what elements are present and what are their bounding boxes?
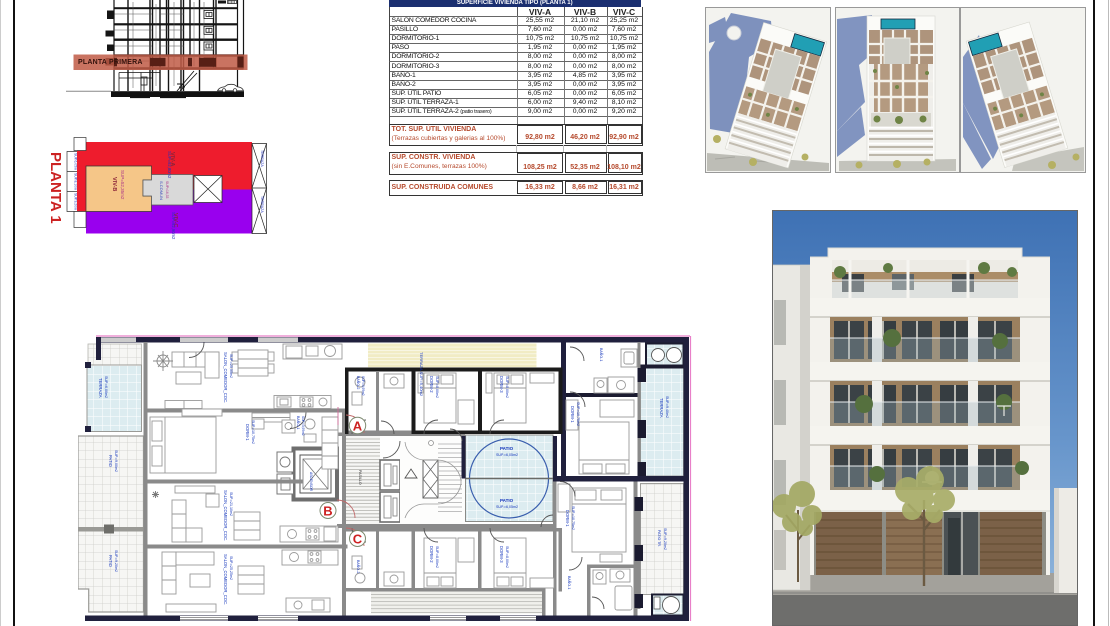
- svg-text:S.COMUN: S.COMUN: [159, 181, 164, 200]
- svg-text:SALON_COMEDOR_COC.: SALON_COMEDOR_COC.: [223, 554, 228, 605]
- svg-text:SUP.8,10m: SUP.8,10m: [74, 173, 78, 190]
- svg-text:SUP.=8,00m2: SUP.=8,00m2: [505, 376, 509, 398]
- svg-text:DORM-3: DORM-3: [499, 376, 504, 393]
- svg-text:PATIO: PATIO: [108, 455, 113, 468]
- svg-text:SUP.=3,95m2: SUP.=3,95m2: [301, 416, 305, 436]
- svg-text:TERRAZA: TERRAZA: [260, 196, 264, 213]
- svg-text:DORM-2: DORM-2: [429, 546, 434, 563]
- svg-text:SUP.=9,20m2: SUP.=9,20m2: [663, 528, 667, 550]
- svg-text:PLANTA PRIMERA: PLANTA PRIMERA: [78, 59, 143, 66]
- svg-text:SUP.=8,00m2: SUP.=8,00m2: [435, 546, 439, 568]
- svg-text:PATIO: PATIO: [108, 555, 113, 568]
- svg-text:SUP.=6,00m2: SUP.=6,00m2: [104, 376, 108, 398]
- svg-text:SUP.=25,25m2: SUP.=25,25m2: [229, 556, 233, 580]
- svg-text:PASILLO: PASILLO: [358, 470, 362, 485]
- svg-text:SUP=16,33: SUP=16,33: [165, 181, 169, 199]
- svg-text:SUP.=6,05m2: SUP.=6,05m2: [496, 453, 518, 457]
- svg-text:SUP.=9,40m2: SUP.=9,40m2: [665, 396, 669, 418]
- svg-text:SUP.=8,00m2: SUP.=8,00m2: [435, 376, 439, 398]
- svg-text:C: C: [353, 532, 363, 547]
- svg-text:SUP.=3,95m2: SUP.=3,95m2: [361, 376, 365, 396]
- svg-text:DORM-1: DORM-1: [570, 406, 575, 423]
- svg-text:BAÑO-1: BAÑO-1: [296, 416, 301, 429]
- svg-text:DORM-3: DORM-3: [499, 546, 504, 563]
- svg-text:DORM-2: DORM-2: [429, 376, 434, 393]
- svg-text:SUP=92,80m2: SUP=92,80m2: [167, 151, 172, 179]
- svg-text:SUP.=21,10m2: SUP.=21,10m2: [229, 492, 233, 516]
- svg-text:SUP.=9,00m2: SUP.=9,00m2: [114, 450, 118, 472]
- svg-text:PATIO: PATIO: [500, 446, 514, 451]
- svg-text:DORM-1: DORM-1: [565, 510, 570, 527]
- svg-text:TERRAZA: TERRAZA: [98, 378, 103, 398]
- svg-text:TERRAZA: TERRAZA: [260, 150, 264, 167]
- svg-text:DORM-1: DORM-1: [245, 424, 250, 441]
- svg-text:BAÑO-1: BAÑO-1: [599, 348, 604, 361]
- svg-text:SUP=52,35m2: SUP=52,35m2: [120, 170, 125, 200]
- svg-text:TERRAZA SUP.=9,40m2: TERRAZA SUP.=9,40m2: [419, 352, 424, 397]
- svg-text:PATIO: PATIO: [500, 498, 514, 503]
- svg-text:SUP.=8,00m2: SUP.=8,00m2: [505, 546, 509, 568]
- svg-text:SUP.=10,75m2: SUP.=10,75m2: [571, 506, 575, 530]
- svg-text:BAÑO-1: BAÑO-1: [567, 576, 572, 589]
- svg-text:SUP.6,05m: SUP.6,05m: [74, 153, 78, 170]
- svg-text:SALON_COMEDOR_COC.: SALON_COMEDOR_COC.: [223, 352, 228, 403]
- svg-text:BAÑO-2: BAÑO-2: [356, 376, 361, 389]
- svg-text:SUP.=10,75m2: SUP.=10,75m2: [251, 420, 255, 444]
- svg-text:SUP.=10,75m2: SUP.=10,75m2: [576, 402, 580, 426]
- svg-text:SUP.=6,05m2: SUP.=6,05m2: [496, 505, 518, 509]
- svg-text:PATIO TR.: PATIO TR.: [657, 530, 661, 547]
- svg-text:SUP.=25,55m2: SUP.=25,55m2: [229, 354, 233, 378]
- svg-text:ASCENSOR: ASCENSOR: [309, 472, 313, 492]
- svg-text:SUP.9,20m: SUP.9,20m: [74, 193, 78, 210]
- svg-text:SALON_COMEDOR_COC.: SALON_COMEDOR_COC.: [223, 490, 228, 541]
- svg-text:SUP.=9,20m2: SUP.=9,20m2: [114, 550, 118, 572]
- svg-text:SUP=92,90m2: SUP=92,90m2: [171, 212, 176, 240]
- svg-text:PLANTA 1: PLANTA 1: [47, 152, 64, 224]
- svg-text:BAÑO-2: BAÑO-2: [356, 560, 361, 573]
- svg-text:A: A: [353, 419, 363, 434]
- svg-text:B: B: [323, 504, 332, 519]
- svg-text:VIV-B: VIV-B: [111, 177, 117, 191]
- svg-text:TERRAZA: TERRAZA: [659, 398, 664, 418]
